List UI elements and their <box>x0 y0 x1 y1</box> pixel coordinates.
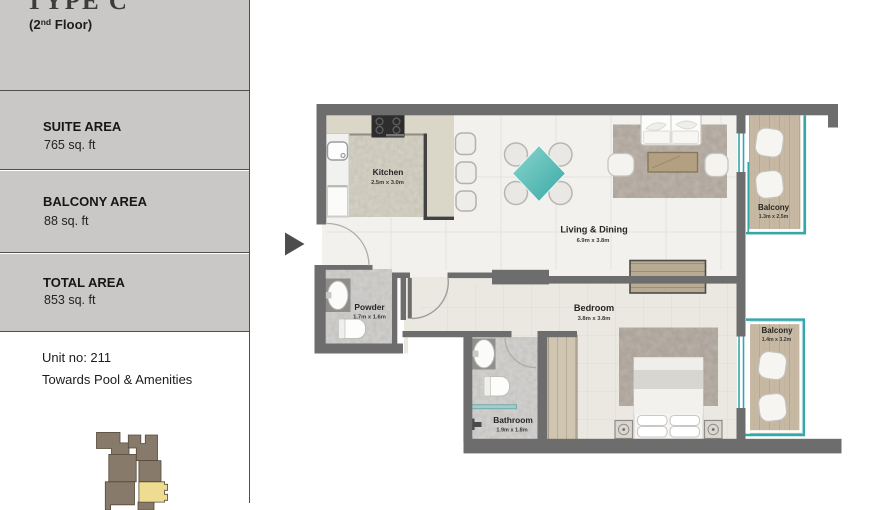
svg-text:3.8m x 3.8m: 3.8m x 3.8m <box>578 316 611 322</box>
svg-text:1.3m x 2.5m: 1.3m x 2.5m <box>759 214 789 220</box>
svg-text:Living & Dining: Living & Dining <box>560 225 627 235</box>
svg-text:Balcony: Balcony <box>761 326 793 335</box>
svg-text:6.9m x 3.8m: 6.9m x 3.8m <box>577 238 610 244</box>
svg-text:2.5m x 3.0m: 2.5m x 3.0m <box>371 180 404 186</box>
svg-text:Bathroom: Bathroom <box>493 415 533 425</box>
svg-text:Kitchen: Kitchen <box>373 167 404 177</box>
svg-text:1.4m x 3.2m: 1.4m x 3.2m <box>762 337 792 343</box>
svg-text:1.9m x 1.8m: 1.9m x 1.8m <box>496 428 527 434</box>
svg-text:Balcony: Balcony <box>758 203 790 212</box>
svg-text:Bedroom: Bedroom <box>574 303 614 313</box>
svg-text:Powder: Powder <box>354 302 385 312</box>
svg-text:1.7m x 1.6m: 1.7m x 1.6m <box>353 315 386 321</box>
